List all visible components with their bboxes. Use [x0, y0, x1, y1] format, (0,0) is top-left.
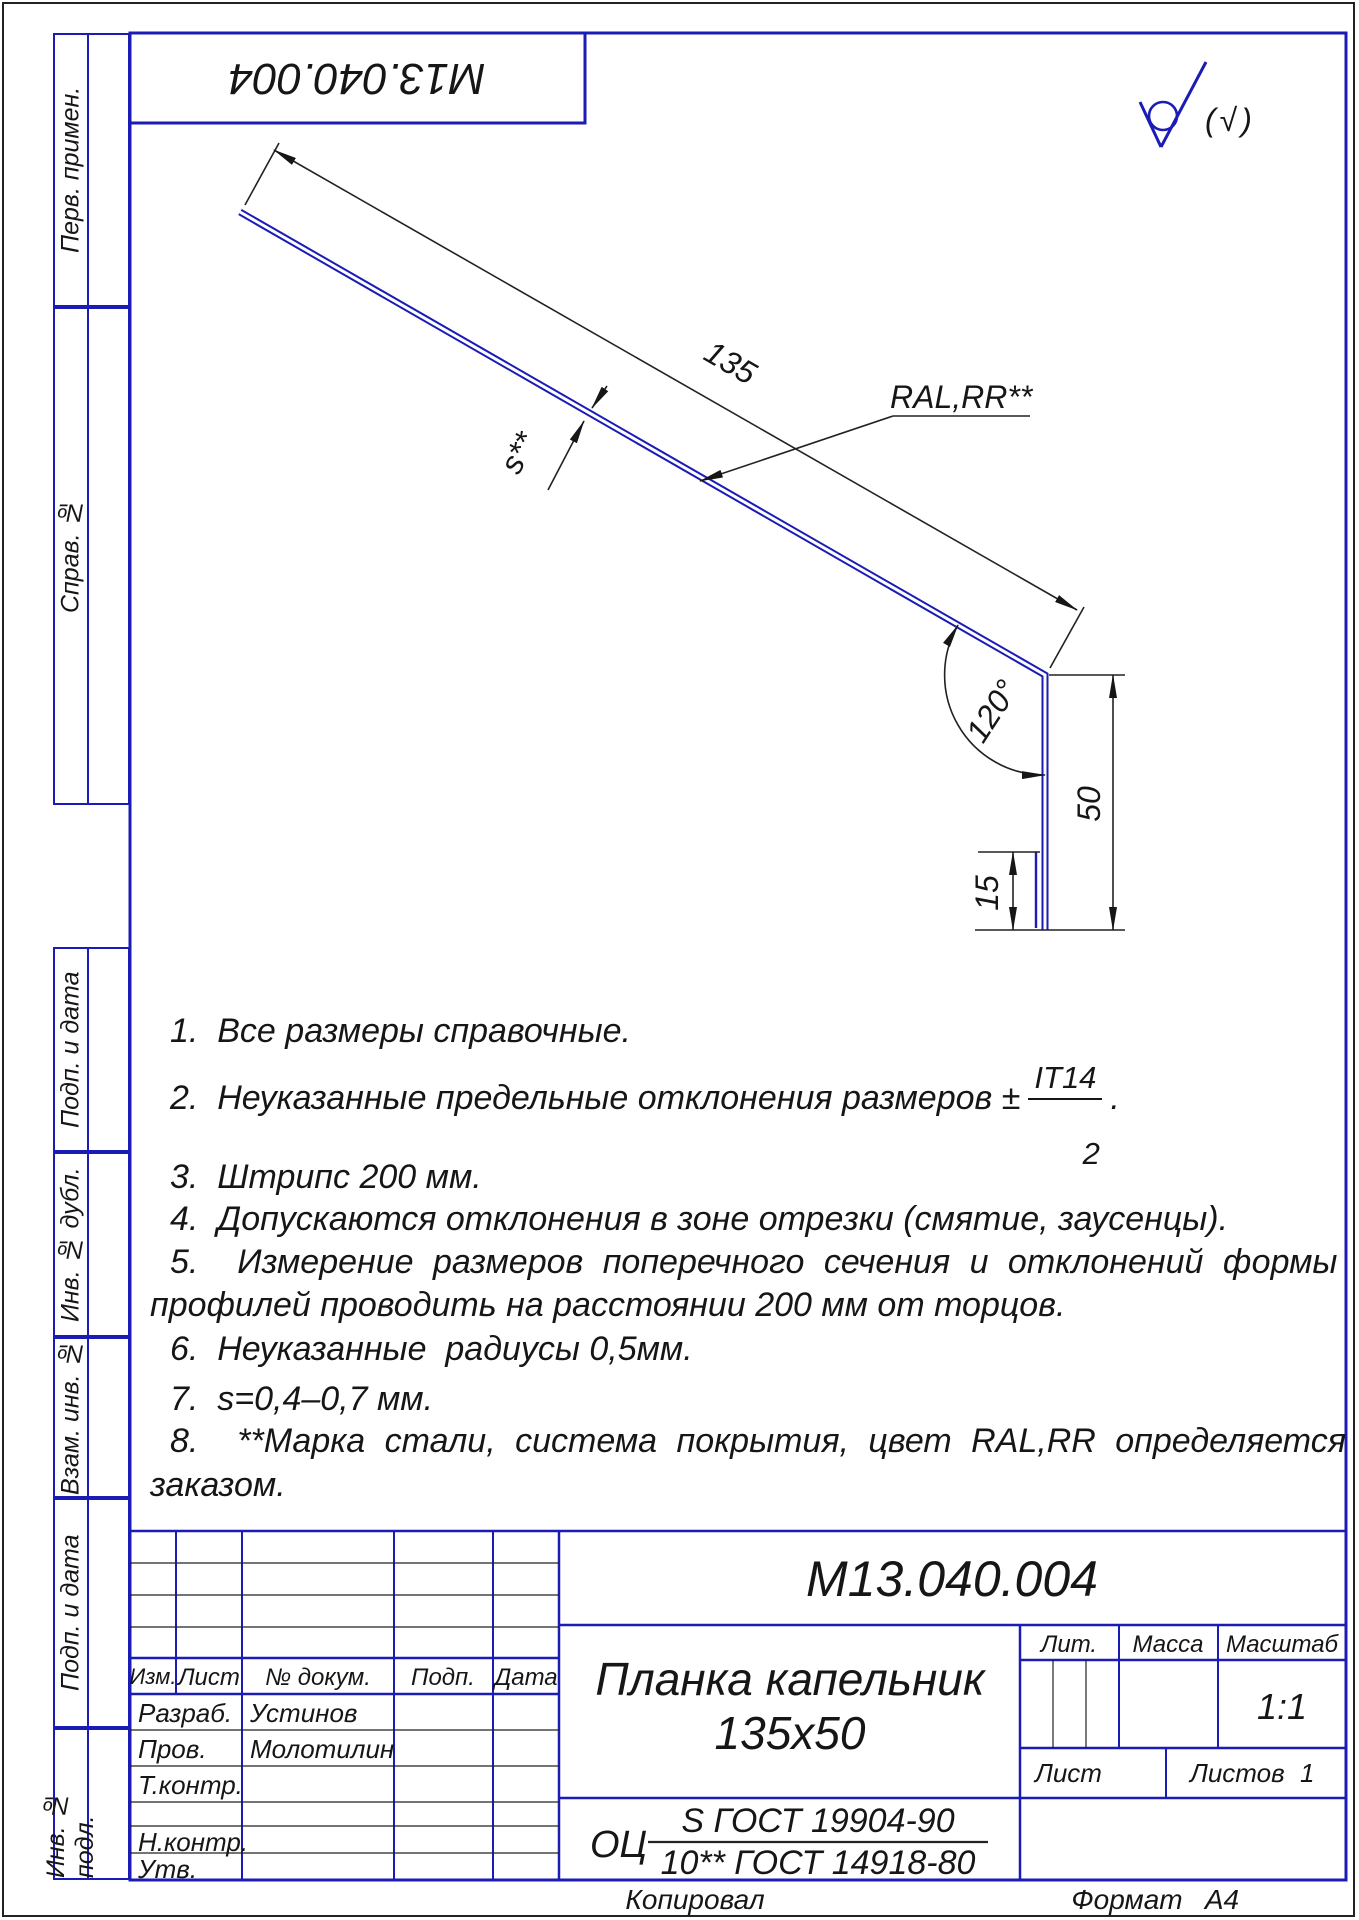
dim-height-text: 50 — [1071, 786, 1107, 822]
margin-cell-divider — [87, 35, 89, 305]
note-2-fraction: IT14 2 — [1028, 989, 1102, 1207]
page-frames — [3, 3, 1354, 1916]
margin-label: Инв. № подл. — [55, 1730, 87, 1878]
margin-label: Инв. № дубл. — [55, 1154, 87, 1335]
doc-number-reversed: М13.040.004 — [229, 53, 486, 103]
margin-label: Перв. примен. — [55, 35, 87, 305]
role-utv: Утв. — [138, 1854, 197, 1885]
margin-cell-sprav-no: Справ. № — [53, 307, 130, 805]
margin-label: Подп. и дата — [55, 1500, 87, 1726]
margin-cell-inv-dubl: Инв. № дубл. — [53, 1152, 130, 1337]
lit-label: Лит. — [1041, 1631, 1097, 1659]
massa-label: Масса — [1133, 1631, 1204, 1659]
list-label: Лист — [1035, 1758, 1102, 1789]
scale-value: 1:1 — [1257, 1686, 1307, 1728]
name-razrab: Устинов — [250, 1698, 358, 1729]
dimension-15: 15 — [969, 852, 1040, 930]
margin-cell-perv-primen: Перв. примен. — [53, 33, 130, 307]
dim-hem-text: 15 — [969, 875, 1005, 911]
note-8-line1: 8. **Марка стали, система покрытия, цвет… — [150, 1422, 1346, 1461]
note-8-line2: заказом. — [150, 1466, 286, 1505]
note-2: 2. Неуказанные предельные отклонения раз… — [150, 1050, 1120, 1146]
note-5-line2: профилей проводить на расстоянии 200 мм … — [150, 1286, 1065, 1325]
dim-angle-text: 120° — [959, 673, 1025, 748]
margin-cell-inv-podl: Инв. № подл. — [53, 1728, 130, 1880]
margin-label: Взам. инв. № — [55, 1339, 87, 1496]
header-podp: Подп. — [411, 1664, 475, 1692]
role-razrab: Разраб. — [138, 1698, 232, 1729]
coating-label-text: RAL,RR** — [890, 379, 1034, 415]
header-izm: Изм. — [130, 1664, 177, 1690]
coating-leader: RAL,RR** — [700, 379, 1034, 481]
format-value: А4 — [1205, 1884, 1239, 1916]
material-bottom: 10** ГОСТ 14918-80 — [661, 1844, 976, 1883]
header-list: Лист — [178, 1664, 240, 1692]
note-4: 4. Допускаются отклонения в зоне отрезки… — [150, 1200, 1228, 1239]
dim-length-text: 135 — [698, 334, 762, 392]
roughness-symbol-icon — [1140, 62, 1206, 147]
margin-label: Подп. и дата — [55, 949, 87, 1150]
margin-cell-vzam-inv: Взам. инв. № — [53, 1337, 130, 1498]
masshtab-label: Масштаб — [1226, 1631, 1338, 1659]
dimension-thickness: s** — [493, 386, 607, 490]
part-name-line2: 135х50 — [715, 1706, 866, 1760]
note-7: 7. s=0,4–0,7 мм. — [150, 1380, 433, 1419]
header-data: Дата — [494, 1664, 557, 1692]
part-name-line1: Планка капельник — [595, 1652, 984, 1706]
profile-view — [240, 212, 1045, 930]
dim-thickness-text: s** — [493, 425, 545, 479]
note-3: 3. Штрипс 200 мм. — [150, 1158, 482, 1197]
kopiroval-label: Копировал — [625, 1884, 764, 1916]
note-6: 6. Неуказанные радиусы 0,5мм. — [150, 1330, 693, 1369]
format-label: Формат — [1071, 1884, 1182, 1916]
margin-cell-podp-data-2: Подп. и дата — [53, 1498, 130, 1728]
engineering-drawing-page: 135 s** RAL,RR** 120° 50 15 — [0, 0, 1359, 1920]
name-prov: Молотилин — [250, 1734, 394, 1765]
material-top: S ГОСТ 19904-90 — [681, 1802, 954, 1841]
note-2-text: 2. Неуказанные предельные отклонения раз… — [170, 1079, 1020, 1118]
role-prov: Пров. — [138, 1734, 207, 1765]
margin-cell-podp-data-1: Подп. и дата — [53, 947, 130, 1152]
header-doc-no: № докум. — [265, 1664, 371, 1692]
listov-value: 1 — [1300, 1758, 1314, 1789]
material-prefix: ОЦ — [590, 1824, 647, 1867]
margin-label: Справ. № — [55, 309, 87, 803]
role-tkontr: Т.контр. — [138, 1770, 243, 1801]
note-1: 1. Все размеры справочные. — [150, 1012, 631, 1051]
title-block-doc-number: М13.040.004 — [806, 1550, 1098, 1608]
listov-label: Листов — [1190, 1758, 1285, 1789]
note-5-line1: 5. Измерение размеров поперечного сечени… — [150, 1243, 1337, 1282]
roughness-note-text: (√) — [1205, 102, 1256, 138]
